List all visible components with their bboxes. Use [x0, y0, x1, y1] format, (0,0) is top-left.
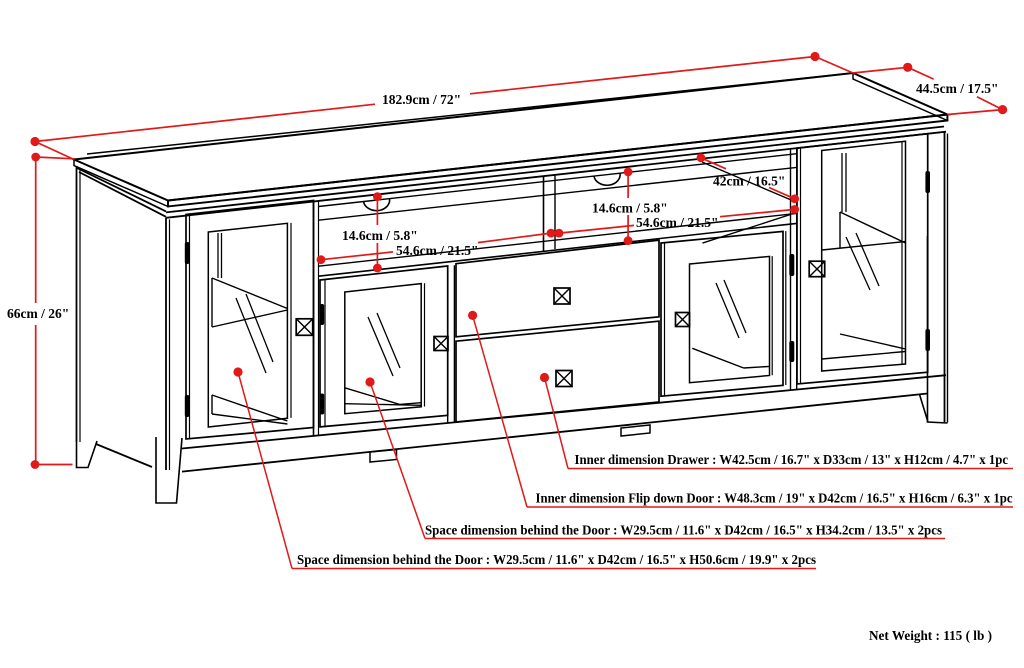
- svg-text:Space dimension behind the Doo: Space dimension behind the Door : W29.5c…: [297, 553, 816, 568]
- svg-text:54.6cm / 21.5": 54.6cm / 21.5": [396, 243, 478, 258]
- svg-text:44.5cm / 17.5": 44.5cm / 17.5": [916, 81, 998, 96]
- svg-text:14.6cm / 5.8": 14.6cm / 5.8": [592, 201, 668, 216]
- svg-text:Inner dimension Drawer : W42.5: Inner dimension Drawer : W42.5cm / 16.7"…: [575, 453, 1009, 468]
- svg-text:Space dimension behind the Doo: Space dimension behind the Door : W29.5c…: [425, 524, 942, 539]
- svg-text:Net Weight : 115 ( lb ): Net Weight : 115 ( lb ): [869, 629, 992, 644]
- svg-text:182.9cm / 72": 182.9cm / 72": [382, 92, 461, 107]
- svg-text:54.6cm / 21.5": 54.6cm / 21.5": [636, 215, 718, 230]
- svg-text:42cm / 16.5": 42cm / 16.5": [713, 174, 785, 189]
- svg-text:14.6cm / 5.8": 14.6cm / 5.8": [342, 228, 418, 243]
- svg-text:66cm / 26": 66cm / 26": [7, 306, 69, 321]
- svg-text:Inner dimension Flip down Door: Inner dimension Flip down Door : W48.3cm…: [536, 492, 1013, 507]
